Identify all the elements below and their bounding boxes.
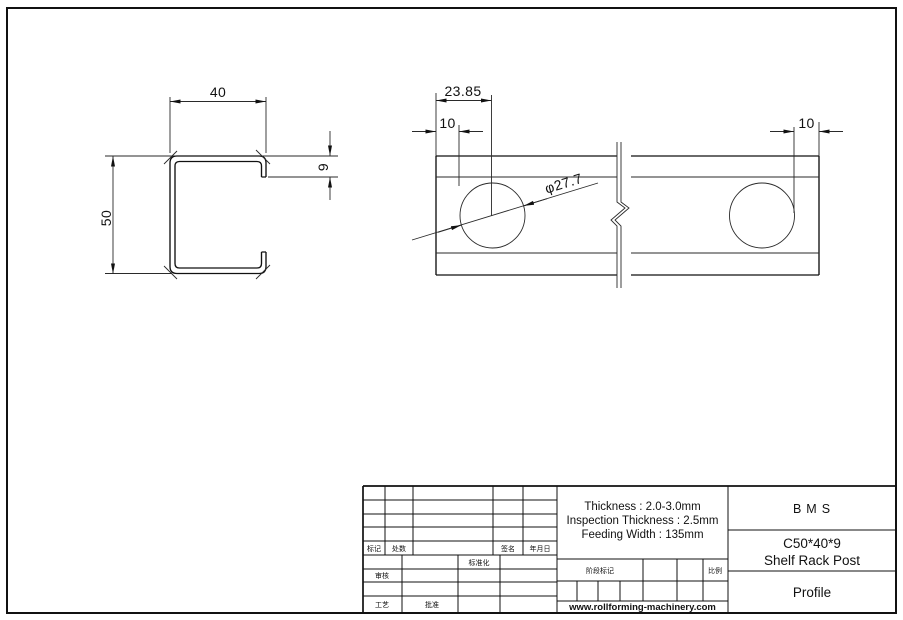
label-approve: 批准 bbox=[425, 600, 439, 609]
product-name: Shelf Rack Post bbox=[764, 553, 860, 568]
company-name: BMS bbox=[793, 502, 835, 516]
spec-feeding-width: Feeding Width : 135mm bbox=[581, 529, 703, 541]
drawing-sheet: 40 50 9 bbox=[0, 0, 903, 620]
label-mark: 标记 bbox=[367, 544, 381, 553]
cad-drawing: 40 50 9 bbox=[0, 0, 903, 620]
dim-hole-offset-label: 23.85 bbox=[444, 83, 481, 99]
break-symbol bbox=[611, 142, 629, 288]
spec-inspection-thickness: Inspection Thickness : 2.5mm bbox=[567, 515, 719, 527]
doc-type: Profile bbox=[793, 585, 831, 600]
label-signature: 签名 bbox=[501, 544, 515, 553]
label-scale: 比例 bbox=[708, 566, 722, 575]
label-count: 处数 bbox=[392, 544, 406, 553]
dim-lip-label: 9 bbox=[315, 163, 331, 171]
website-url: www.rollforming-machinery.com bbox=[568, 602, 716, 613]
label-standardization: 标准化 bbox=[469, 558, 490, 567]
bend-marks bbox=[164, 150, 270, 279]
title-block: 标记 处数 签名 年月日 标准化 审核 工艺 批准 阶段标记 比例 Thickn… bbox=[363, 486, 896, 613]
c-profile-inner bbox=[175, 162, 262, 269]
strip-view: 23.85 10 10 φ27.7 bbox=[412, 83, 843, 288]
label-date: 年月日 bbox=[530, 544, 551, 553]
dim-height-label: 50 bbox=[98, 210, 114, 226]
label-stage: 阶段标记 bbox=[586, 566, 614, 575]
dim-width-label: 40 bbox=[210, 84, 226, 100]
label-check: 审核 bbox=[375, 571, 389, 580]
dim-left-margin-label: 10 bbox=[439, 115, 455, 131]
c-profile-outer bbox=[170, 156, 266, 274]
model-number: C50*40*9 bbox=[783, 536, 841, 551]
label-process: 工艺 bbox=[375, 601, 389, 609]
hole-right bbox=[730, 183, 795, 248]
spec-thickness: Thickness : 2.0-3.0mm bbox=[584, 501, 700, 513]
c-section-view: 40 50 9 bbox=[98, 84, 338, 279]
dim-hole-dia-label: φ27.7 bbox=[543, 170, 584, 197]
dim-right-margin-label: 10 bbox=[798, 115, 814, 131]
